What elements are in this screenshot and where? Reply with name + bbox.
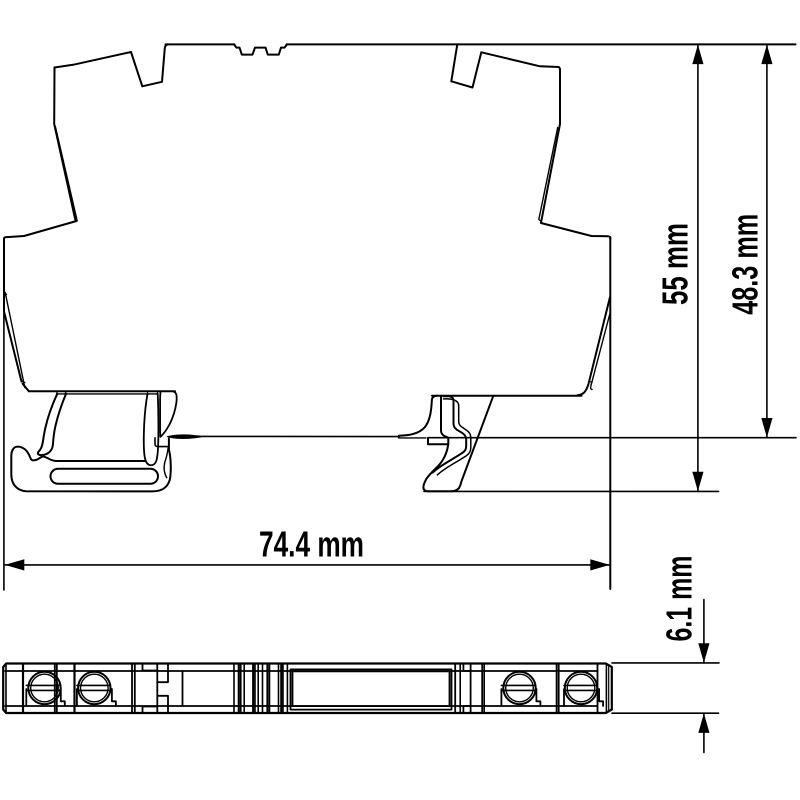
svg-text:6.1 mm: 6.1 mm (659, 556, 700, 642)
svg-text:55 mm: 55 mm (655, 223, 696, 305)
svg-text:48.3 mm: 48.3 mm (725, 214, 766, 315)
svg-text:74.4 mm: 74.4 mm (259, 523, 364, 564)
